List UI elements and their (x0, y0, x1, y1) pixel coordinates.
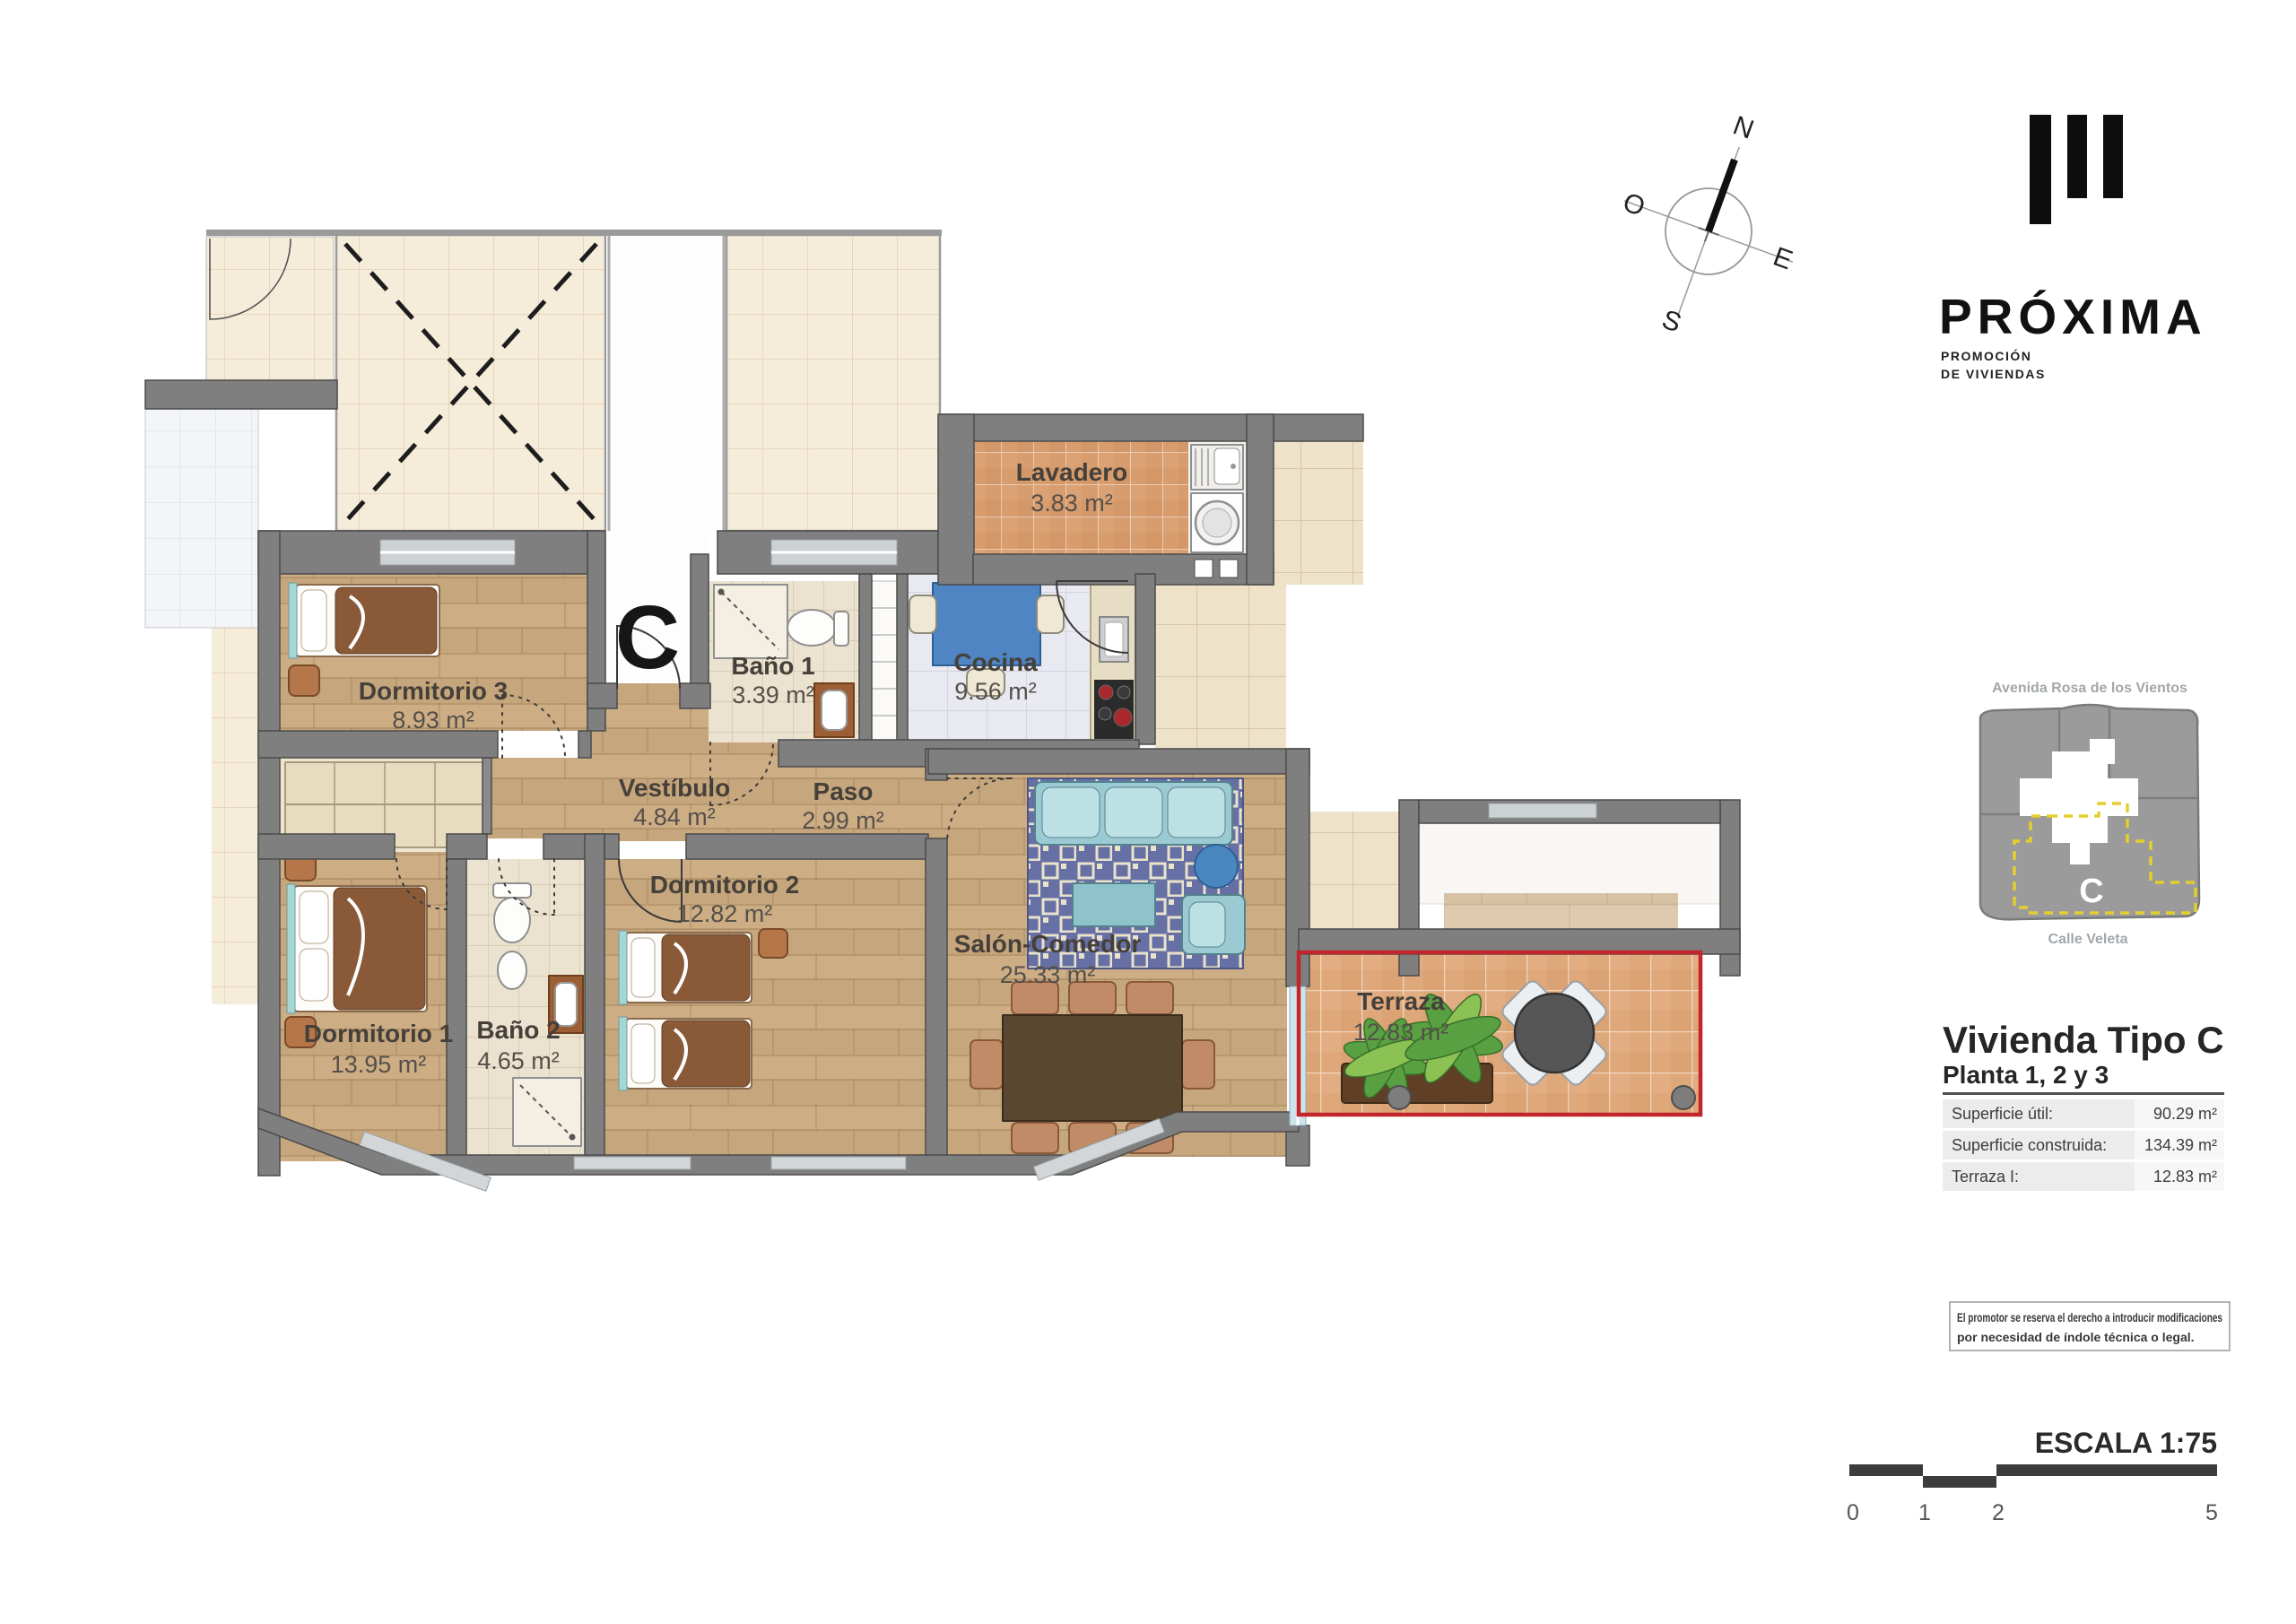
site-map-unit-letter: C (2079, 873, 2103, 910)
room-label-cocina: Cocina (953, 648, 1038, 676)
logo-bar (2067, 115, 2087, 198)
street-top-label: Avenida Rosa de los Vientos (1992, 681, 2187, 696)
room-area-bano-2: 4.65 m² (477, 1047, 560, 1074)
wall (258, 834, 395, 859)
floor-plan: Dormitorio 3 8.93 m² Vestíbulo 4.84 m² P… (145, 230, 1740, 1226)
disclaimer-line-1: El promotor se reserva el derecho a intr… (1957, 1310, 2222, 1324)
table-row-label: Superficie útil: (1952, 1105, 2053, 1123)
room-label-salon: Salón-Comedor (954, 930, 1142, 958)
scale-bar: ESCALA 1:75 0 1 2 5 (1847, 1427, 2218, 1525)
wall (604, 834, 619, 859)
wall (897, 574, 908, 743)
brand-logo: PRÓXIMA PROMOCIÓN DE VIVIENDAS (1939, 115, 2207, 381)
page-canvas: Dormitorio 3 8.93 m² Vestíbulo 4.84 m² P… (0, 0, 2296, 1624)
room-label-vestibulo: Vestíbulo (619, 774, 730, 802)
neighbor-strip-left (212, 628, 258, 1004)
wall (258, 731, 498, 758)
compass-west-label: O (1619, 187, 1648, 222)
disclaimer-line-2: por necesidad de índole técnica o legal. (1957, 1330, 2195, 1344)
scale-segment (1923, 1476, 1996, 1488)
scale-segment (1849, 1464, 1923, 1476)
wall (447, 834, 487, 859)
coffee-table (1073, 883, 1155, 926)
wall (686, 834, 928, 859)
brand-name: PRÓXIMA (1939, 289, 2207, 344)
room-label-lavadero: Lavadero (1016, 458, 1128, 486)
wall (859, 574, 872, 743)
room-label-dormitorio-3: Dormitorio 3 (359, 677, 508, 705)
neighbor-room-top-right (1419, 823, 1720, 904)
wall (938, 414, 974, 585)
info-subtitle: Planta 1, 2 y 3 (1943, 1061, 2109, 1089)
window-small (1220, 560, 1238, 578)
window (1489, 803, 1596, 818)
brand-tagline-2: DE VIVIENDAS (1941, 367, 2046, 381)
terrace-dot (1387, 1086, 1411, 1109)
scale-segment (1996, 1464, 2217, 1476)
patio-2 (726, 235, 940, 531)
wall (585, 834, 604, 1157)
wall (1247, 414, 1274, 585)
room-area-vestibulo: 4.84 m² (633, 803, 716, 830)
compass-east-label: E (1770, 242, 1796, 276)
unit-letter: C (615, 587, 680, 688)
room-label-dormitorio-2: Dormitorio 2 (650, 871, 799, 899)
terrace-table (1515, 994, 1594, 1073)
scale-label: ESCALA 1:75 (2035, 1427, 2217, 1459)
wall (587, 683, 617, 708)
wall (926, 838, 947, 1157)
room-area-salon: 25.33 m² (1000, 961, 1096, 988)
compass-needle (1709, 160, 1735, 231)
table-row-value: 134.39 m² (2144, 1136, 2217, 1154)
neighbor-room-left (145, 409, 258, 628)
brand-tagline-1: PROMOCIÓN (1941, 348, 2031, 363)
window (574, 1157, 691, 1169)
scale-tick-5: 5 (2205, 1500, 2218, 1525)
top-wall-line (206, 230, 942, 236)
room-area-terraza: 12.83 m² (1353, 1019, 1449, 1046)
wall (447, 859, 466, 1157)
side-table (1195, 845, 1238, 888)
logo-bar (2103, 115, 2123, 198)
compass-south-label: S (1658, 305, 1685, 339)
wall (942, 414, 1363, 441)
room-area-dormitorio-2: 12.82 m² (677, 900, 773, 927)
compass-north-label: N (1729, 110, 1758, 144)
disclaimer-box: El promotor se reserva el derecho a intr… (1950, 1302, 2230, 1350)
wall-thin (483, 758, 491, 834)
terrace-dot (1672, 1086, 1695, 1109)
scale-tick-2: 2 (1992, 1500, 2005, 1525)
info-title: Vivienda Tipo C (1943, 1019, 2224, 1061)
table-row-label: Terraza I: (1952, 1168, 2019, 1185)
room-area-dormitorio-3: 8.93 m² (392, 707, 474, 734)
room-area-cocina: 9.56 m² (954, 678, 1037, 705)
scale-tick-0: 0 (1847, 1500, 1859, 1525)
window (771, 1157, 906, 1169)
table-row-value: 90.29 m² (2153, 1105, 2217, 1123)
stair-shaft (606, 235, 726, 531)
info-rule (1943, 1092, 2224, 1095)
neighbor-deck (1444, 893, 1678, 929)
window-small (1195, 560, 1213, 578)
logo-bar (2030, 115, 2051, 224)
room-area-bano-1: 3.39 m² (732, 682, 814, 708)
table-row-label: Superficie construida: (1952, 1136, 2107, 1154)
room-area-lavadero: 3.83 m² (1031, 490, 1113, 517)
floor-hall-strip (487, 758, 590, 838)
room-label-paso: Paso (813, 777, 874, 805)
wall (680, 683, 710, 708)
room-label-terraza: Terraza (1357, 987, 1445, 1015)
room-label-bano-2: Baño 2 (476, 1016, 560, 1044)
room-label-bano-1: Baño 1 (731, 652, 814, 680)
wall (578, 731, 591, 758)
compass: N O E S (1594, 110, 1823, 346)
wall (928, 749, 1309, 774)
wall (691, 554, 709, 689)
table-row-value: 12.83 m² (2153, 1168, 2217, 1185)
room-area-dormitorio-1: 13.95 m² (331, 1051, 427, 1078)
surface-table: Superficie útil: 90.29 m² Superficie con… (1943, 1099, 2224, 1191)
scale-tick-1: 1 (1918, 1500, 1931, 1525)
room-area-paso: 2.99 m² (802, 807, 884, 834)
site-map: Avenida Rosa de los Vientos C Calle Vele… (1980, 681, 2199, 947)
wall (1135, 574, 1155, 744)
neighbor-room-top-left (206, 237, 334, 380)
street-bottom-label: Calle Veleta (2048, 932, 2128, 947)
room-label-dormitorio-1: Dormitorio 1 (304, 1020, 453, 1047)
wall (145, 380, 337, 409)
dining-table (1003, 1015, 1182, 1121)
laundry-fixtures (1191, 445, 1243, 552)
neighbor-area-upper-right (1274, 441, 1363, 585)
neighbor-area-right (1155, 581, 1286, 751)
info-panel: Vivienda Tipo C Planta 1, 2 y 3 Superfic… (1943, 1019, 2224, 1191)
